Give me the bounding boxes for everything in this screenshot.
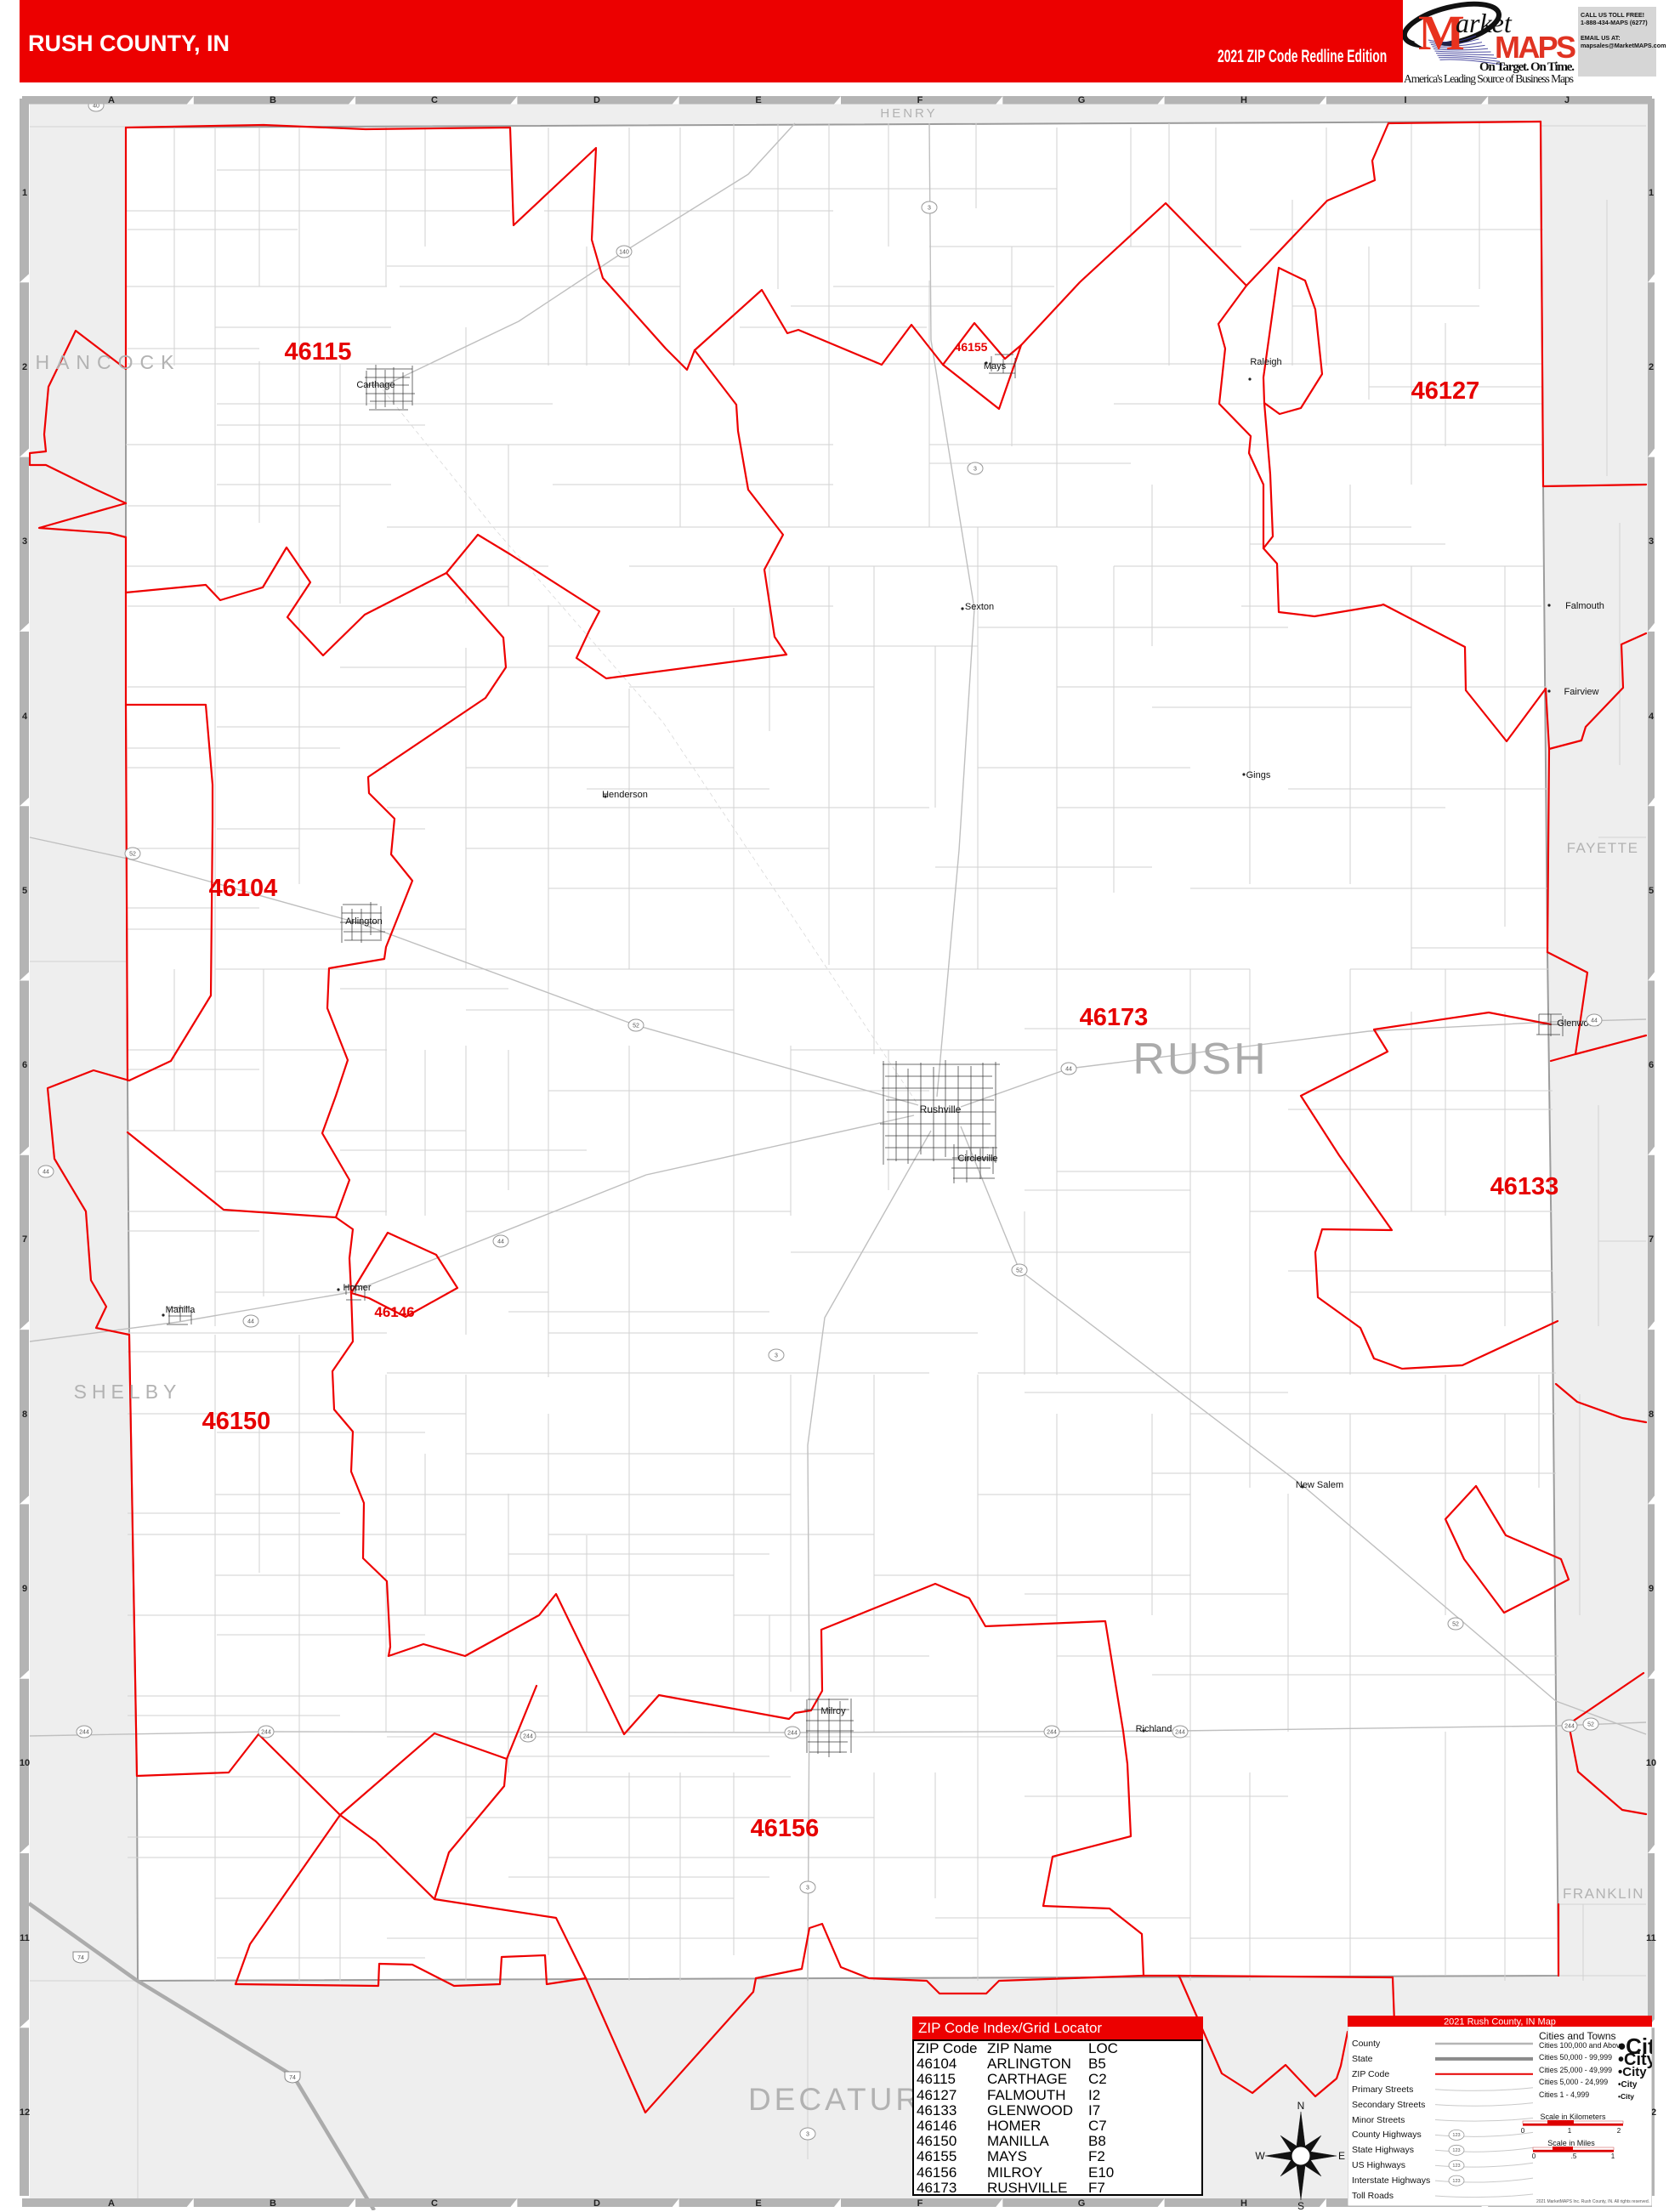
svg-text:4: 4: [1649, 712, 1655, 722]
svg-text:D: D: [593, 95, 600, 105]
svg-text:2: 2: [22, 362, 27, 372]
svg-text:A: A: [108, 95, 115, 105]
svg-text:10: 10: [1646, 1758, 1656, 1768]
svg-text:2: 2: [1617, 2127, 1621, 2135]
svg-text:46104: 46104: [209, 875, 278, 902]
svg-text:5: 5: [22, 886, 27, 896]
svg-text:Cities 25,000 - 49,999: Cities 25,000 - 49,999: [1539, 2066, 1612, 2074]
svg-text:Minor Streets: Minor Streets: [1352, 2115, 1405, 2125]
svg-text:1: 1: [22, 188, 27, 198]
svg-text:44: 44: [1591, 1018, 1598, 1024]
svg-text:3: 3: [806, 1886, 809, 1892]
svg-text:12: 12: [20, 2107, 30, 2118]
svg-text:52: 52: [633, 1024, 639, 1029]
svg-text:G: G: [1078, 2198, 1086, 2209]
svg-text:E: E: [755, 95, 761, 105]
svg-text:Sexton: Sexton: [965, 602, 994, 612]
svg-text:County Highways: County Highways: [1352, 2130, 1422, 2140]
svg-text:0: 0: [1521, 2127, 1525, 2135]
svg-text:H: H: [1240, 95, 1247, 105]
svg-text:RUSH: RUSH: [1133, 1035, 1268, 1084]
svg-text:Fairview: Fairview: [1564, 687, 1599, 697]
svg-text:140: 140: [619, 250, 629, 256]
svg-text:Milroy: Milroy: [820, 1706, 846, 1716]
svg-text:Richland: Richland: [1136, 1724, 1172, 1734]
svg-text:Cities and Towns: Cities and Towns: [1539, 2030, 1616, 2042]
svg-text:FAYETTE: FAYETTE: [1567, 840, 1639, 856]
svg-text:G: G: [1078, 95, 1086, 105]
svg-text:244: 244: [523, 1734, 533, 1740]
svg-text:74: 74: [289, 2075, 296, 2081]
svg-text:46173: 46173: [1080, 1004, 1149, 1031]
svg-text:.5: .5: [1571, 2152, 1577, 2160]
svg-text:40: 40: [93, 104, 99, 110]
svg-text:3: 3: [928, 206, 931, 212]
svg-text:44: 44: [497, 1239, 504, 1245]
svg-text:123: 123: [1452, 2179, 1460, 2184]
svg-text:6: 6: [22, 1060, 27, 1070]
svg-text:W: W: [1255, 2150, 1265, 2162]
svg-text:44: 44: [43, 1170, 49, 1176]
svg-text:HANCOCK: HANCOCK: [35, 351, 180, 373]
svg-text:•City: •City: [1618, 2065, 1647, 2079]
svg-text:Primary Streets: Primary Streets: [1352, 2084, 1413, 2095]
svg-text:N: N: [1297, 2100, 1305, 2112]
svg-text:J: J: [1564, 95, 1570, 105]
svg-text:5: 5: [1649, 886, 1654, 896]
svg-text:244: 244: [1564, 1724, 1575, 1730]
svg-text:4: 4: [22, 712, 28, 722]
svg-text:1: 1: [1611, 2152, 1615, 2160]
svg-text:52: 52: [129, 852, 136, 858]
svg-text:9: 9: [22, 1584, 27, 1594]
svg-text:2: 2: [1649, 362, 1654, 372]
svg-text:44: 44: [247, 1319, 254, 1325]
svg-text:HENRY: HENRY: [880, 106, 937, 121]
svg-text:2021 MarketMAPS Inc. Rush Coun: 2021 MarketMAPS Inc. Rush County, IN. Al…: [1536, 2199, 1649, 2204]
svg-text:Scale in Kilometers: Scale in Kilometers: [1540, 2113, 1606, 2121]
svg-text:State: State: [1352, 2054, 1373, 2064]
svg-text:Cities 5,000 - 24,999: Cities 5,000 - 24,999: [1539, 2078, 1608, 2086]
svg-text:ZIP Code: ZIP Code: [1352, 2069, 1389, 2079]
svg-text:3: 3: [1649, 536, 1654, 547]
svg-text:46156: 46156: [751, 1815, 820, 1842]
svg-text:Rushville: Rushville: [920, 1103, 962, 1115]
svg-text:C: C: [431, 2198, 438, 2209]
svg-text:1: 1: [1568, 2127, 1572, 2135]
svg-text:3: 3: [974, 467, 977, 473]
svg-text:2021 Rush County, IN Map: 2021 Rush County, IN Map: [1444, 2017, 1556, 2028]
svg-text:46127: 46127: [1411, 377, 1480, 405]
svg-text:8: 8: [22, 1409, 27, 1420]
svg-text:D: D: [593, 2198, 600, 2209]
svg-text:Manilla: Manilla: [166, 1305, 196, 1315]
svg-text:Arlington: Arlington: [345, 916, 382, 927]
svg-text:County: County: [1352, 2039, 1381, 2049]
svg-text:B: B: [270, 95, 276, 105]
svg-text:0: 0: [1532, 2152, 1536, 2160]
svg-text:B: B: [270, 2198, 276, 2209]
svg-text:US Highways: US Highways: [1352, 2160, 1405, 2170]
svg-text:3: 3: [22, 536, 27, 547]
svg-text:1: 1: [1649, 188, 1654, 198]
svg-text:Toll Roads: Toll Roads: [1352, 2191, 1394, 2201]
svg-text:11: 11: [20, 1933, 30, 1943]
svg-text:DECATUR: DECATUR: [748, 2082, 922, 2117]
svg-text:Falmouth: Falmouth: [1565, 601, 1604, 611]
svg-text:Gings: Gings: [1246, 770, 1271, 780]
svg-text:America's Leading Source of B: America's Leading Source of Business Map…: [1404, 72, 1574, 85]
svg-text:I: I: [1404, 95, 1406, 105]
svg-text:10: 10: [20, 1758, 30, 1768]
svg-text:46146: 46146: [374, 1304, 414, 1320]
svg-text:244: 244: [1047, 1730, 1057, 1736]
svg-text:Cities 1 - 4,999: Cities 1 - 4,999: [1539, 2090, 1589, 2099]
svg-text:Homer: Homer: [343, 1283, 371, 1293]
svg-text:46133: 46133: [1490, 1173, 1559, 1200]
svg-text:E: E: [755, 2198, 761, 2209]
svg-text:244: 244: [261, 1730, 271, 1736]
svg-text:C: C: [431, 95, 438, 105]
svg-text:44: 44: [1065, 1067, 1072, 1073]
svg-text:244: 244: [787, 1731, 798, 1737]
svg-text:8: 8: [1649, 1409, 1654, 1420]
svg-text:Secondary Streets: Secondary Streets: [1352, 2100, 1425, 2110]
svg-text:6: 6: [1649, 1060, 1654, 1070]
svg-text:•City: •City: [1618, 2080, 1638, 2090]
svg-text:F: F: [917, 95, 923, 105]
svg-text:Interstate Highways: Interstate Highways: [1352, 2175, 1430, 2186]
svg-text:State Highways: State Highways: [1352, 2145, 1414, 2155]
svg-text:123: 123: [1452, 2133, 1460, 2138]
svg-text:7: 7: [22, 1234, 27, 1245]
svg-text:FRANKLIN: FRANKLIN: [1563, 1886, 1644, 1902]
svg-text:•City: •City: [1618, 2092, 1634, 2101]
svg-text:E: E: [1338, 2150, 1345, 2162]
svg-text:H: H: [1240, 2198, 1247, 2209]
svg-text:SHELBY: SHELBY: [74, 1381, 182, 1403]
svg-text:9: 9: [1649, 1584, 1654, 1594]
svg-text:Cities 50,000 - 99,999: Cities 50,000 - 99,999: [1539, 2053, 1612, 2062]
svg-text:11: 11: [1646, 1933, 1656, 1943]
svg-text:244: 244: [1175, 1730, 1185, 1736]
svg-text:46115: 46115: [284, 338, 351, 366]
svg-text:Raleigh: Raleigh: [1250, 357, 1281, 367]
svg-text:Carthage: Carthage: [356, 380, 395, 390]
svg-text:F: F: [917, 2198, 923, 2209]
svg-text:3: 3: [806, 2132, 809, 2138]
svg-text:A: A: [108, 2198, 115, 2209]
svg-text:Henderson: Henderson: [602, 790, 648, 800]
svg-text:123: 123: [1452, 2148, 1460, 2153]
svg-text:Cities 100,000 and Above: Cities 100,000 and Above: [1539, 2041, 1624, 2050]
svg-text:123: 123: [1452, 2164, 1460, 2169]
svg-text:Scale in Miles: Scale in Miles: [1547, 2139, 1595, 2147]
svg-text:52: 52: [1016, 1268, 1023, 1274]
svg-text:Circleville: Circleville: [957, 1154, 997, 1164]
svg-text:New Salem: New Salem: [1296, 1480, 1343, 1490]
svg-text:46150: 46150: [202, 1408, 271, 1435]
svg-text:MAPS: MAPS: [1495, 30, 1576, 65]
svg-text:46155: 46155: [955, 340, 988, 354]
svg-text:244: 244: [79, 1730, 89, 1736]
svg-text:7: 7: [1649, 1234, 1654, 1245]
svg-text:3: 3: [775, 1353, 778, 1359]
svg-text:74: 74: [77, 1955, 84, 1961]
svg-text:52: 52: [1452, 1622, 1459, 1628]
svg-text:52: 52: [1587, 1722, 1594, 1728]
